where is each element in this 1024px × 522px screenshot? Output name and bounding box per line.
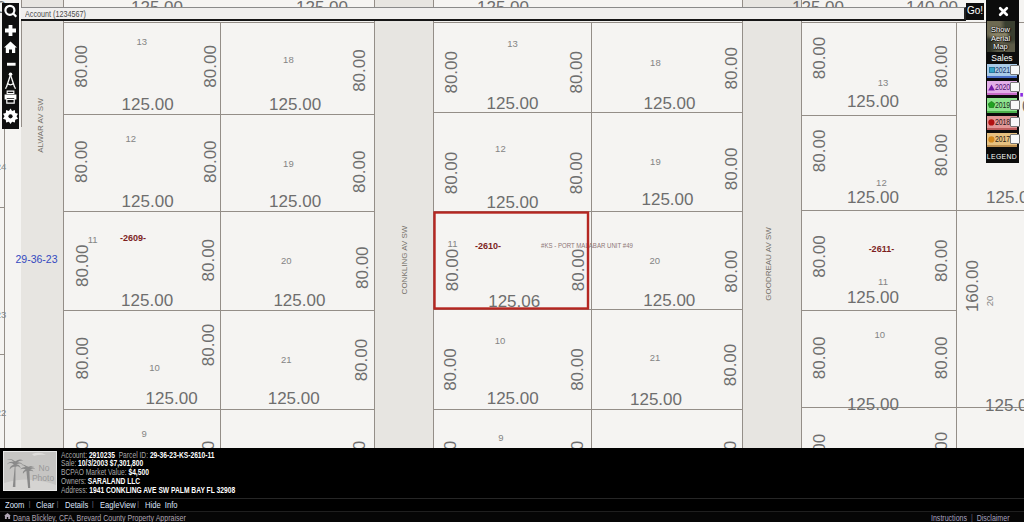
svg-text:20: 20 xyxy=(649,255,660,266)
svg-text:80.00: 80.00 xyxy=(442,152,461,195)
svg-text:19: 19 xyxy=(283,158,294,169)
svg-text:125.00: 125.00 xyxy=(847,188,899,207)
svg-text:80.00: 80.00 xyxy=(73,441,92,448)
svg-text:80.00: 80.00 xyxy=(352,339,371,382)
svg-text:13: 13 xyxy=(136,36,147,47)
svg-text:80.00: 80.00 xyxy=(441,441,460,448)
svg-text:80.00: 80.00 xyxy=(932,134,951,177)
svg-text:125.00: 125.00 xyxy=(644,94,696,113)
svg-text:80.00: 80.00 xyxy=(721,441,740,448)
svg-text:Photo: Photo xyxy=(32,473,54,483)
svg-text:125.00: 125.00 xyxy=(630,390,682,409)
svg-text:80.00: 80.00 xyxy=(199,324,218,367)
svg-text:9: 9 xyxy=(141,428,146,439)
svg-text:No: No xyxy=(39,463,50,473)
svg-text:13: 13 xyxy=(507,38,518,49)
svg-text:80.00: 80.00 xyxy=(932,45,951,88)
svg-text:80.00: 80.00 xyxy=(932,239,951,282)
svg-text:-2609-: -2609- xyxy=(120,233,146,243)
svg-text:80.00: 80.00 xyxy=(722,47,741,90)
svg-text:12: 12 xyxy=(125,133,136,144)
svg-text:80.00: 80.00 xyxy=(722,250,741,293)
svg-text:ALWAR AV SW: ALWAR AV SW xyxy=(36,98,45,153)
svg-text:23: 23 xyxy=(0,309,6,320)
svg-text:12: 12 xyxy=(876,177,887,188)
svg-text:80.00: 80.00 xyxy=(810,337,829,380)
svg-text:CONKLING AV SW: CONKLING AV SW xyxy=(400,225,409,294)
svg-text:80.00: 80.00 xyxy=(201,45,220,88)
svg-text:80.00: 80.00 xyxy=(350,151,369,194)
svg-text:13: 13 xyxy=(878,77,889,88)
svg-text:21: 21 xyxy=(281,354,292,365)
svg-text:21: 21 xyxy=(650,352,661,363)
svg-text:80.00: 80.00 xyxy=(932,432,951,448)
svg-text:125.00: 125.00 xyxy=(122,95,174,114)
svg-text:80.00: 80.00 xyxy=(569,249,588,292)
svg-text:20: 20 xyxy=(984,296,995,307)
svg-text:24: 24 xyxy=(0,161,6,172)
svg-text:125.00: 125.00 xyxy=(986,188,1024,207)
svg-text:80.00: 80.00 xyxy=(441,348,460,391)
svg-text:80.00: 80.00 xyxy=(350,441,369,448)
svg-text:125.00: 125.00 xyxy=(487,193,539,212)
svg-text:125.00: 125.00 xyxy=(273,291,325,310)
svg-text:GOODREAU AV SW: GOODREAU AV SW xyxy=(764,227,773,301)
svg-text:9: 9 xyxy=(498,432,503,443)
svg-text:22: 22 xyxy=(0,407,6,418)
svg-text:80.00: 80.00 xyxy=(722,148,741,191)
svg-text:80.00: 80.00 xyxy=(810,37,829,80)
svg-text:10: 10 xyxy=(149,362,160,373)
svg-text:-2611-: -2611- xyxy=(869,244,895,254)
svg-text:80.00: 80.00 xyxy=(810,235,829,278)
svg-text:80.00: 80.00 xyxy=(72,45,91,88)
svg-text:80.00: 80.00 xyxy=(567,51,586,94)
svg-text:80.00: 80.00 xyxy=(810,130,829,173)
svg-text:125.00: 125.00 xyxy=(121,291,173,310)
svg-text:80.00: 80.00 xyxy=(721,344,740,387)
svg-text:125.00: 125.00 xyxy=(269,95,321,114)
svg-text:80.00: 80.00 xyxy=(72,140,91,183)
svg-text:-2610-: -2610- xyxy=(475,241,501,251)
svg-text:125.00: 125.00 xyxy=(269,192,321,211)
svg-text:80.00: 80.00 xyxy=(73,245,92,288)
svg-text:80.00: 80.00 xyxy=(568,441,587,448)
svg-text:125.00: 125.00 xyxy=(847,288,899,307)
svg-text:80.00: 80.00 xyxy=(932,337,951,380)
svg-text:125.00: 125.00 xyxy=(268,389,320,408)
svg-text:125.00: 125.00 xyxy=(146,389,198,408)
svg-text:125.00: 125.00 xyxy=(642,190,694,209)
svg-text:125.00: 125.00 xyxy=(122,192,174,211)
svg-text:80.00: 80.00 xyxy=(443,249,462,292)
svg-text:11: 11 xyxy=(878,276,888,287)
svg-text:125.00: 125.00 xyxy=(847,92,899,111)
svg-text:80.00: 80.00 xyxy=(350,49,369,92)
svg-text:80.00: 80.00 xyxy=(199,239,218,282)
svg-text:125.00: 125.00 xyxy=(643,291,695,310)
svg-text:80.00: 80.00 xyxy=(442,51,461,94)
svg-text:20: 20 xyxy=(281,255,292,266)
svg-text:80.00: 80.00 xyxy=(353,246,372,289)
svg-text:80.00: 80.00 xyxy=(199,441,218,448)
svg-text:80.00: 80.00 xyxy=(568,348,587,391)
svg-text:18: 18 xyxy=(650,57,661,68)
svg-text:29-36-23: 29-36-23 xyxy=(15,253,57,265)
svg-text:18: 18 xyxy=(283,54,294,65)
svg-text:125.00: 125.00 xyxy=(487,94,539,113)
svg-text:125.00: 125.00 xyxy=(847,395,899,414)
svg-text:11: 11 xyxy=(448,238,458,249)
svg-text:125.00: 125.00 xyxy=(487,389,539,408)
svg-text:11: 11 xyxy=(88,234,98,245)
svg-text:80.00: 80.00 xyxy=(73,337,92,380)
svg-text:125.00: 125.00 xyxy=(985,396,1024,415)
svg-text:10: 10 xyxy=(495,335,506,346)
svg-text:80.00: 80.00 xyxy=(201,140,220,183)
svg-text:80.00: 80.00 xyxy=(567,152,586,195)
svg-text:10: 10 xyxy=(874,329,885,340)
svg-text:12: 12 xyxy=(495,143,506,154)
svg-text:80.00: 80.00 xyxy=(810,434,829,448)
svg-text:160.00: 160.00 xyxy=(963,260,982,312)
svg-text:19: 19 xyxy=(650,156,661,167)
